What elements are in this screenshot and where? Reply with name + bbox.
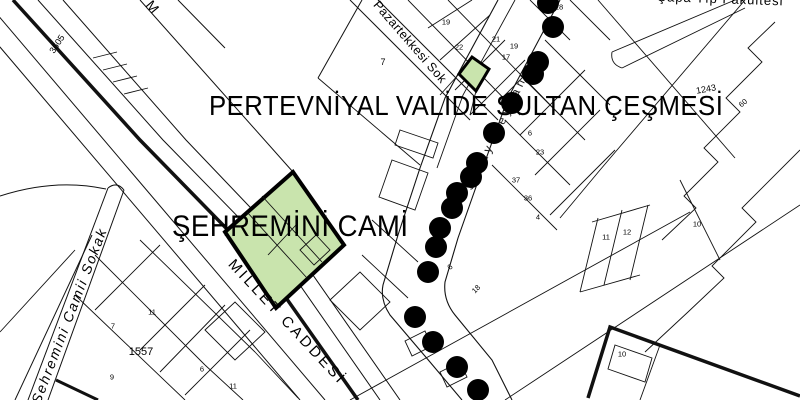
tree-dot: [446, 356, 468, 378]
tree-dot: [417, 261, 439, 283]
tree-row: [0, 0, 800, 400]
tree-dot: [542, 16, 564, 38]
tree-dot: [404, 306, 426, 328]
tree-dot: [537, 0, 559, 14]
cadastral-map: PERTEVNİYAL VALİDE SULTAN ÇEŞMESİ ŞEHREM…: [0, 0, 800, 400]
tree-dot: [467, 379, 489, 400]
tree-dot: [522, 63, 544, 85]
tree-dot: [422, 331, 444, 353]
tree-dot: [425, 236, 447, 258]
tree-dot: [429, 217, 451, 239]
tree-dot: [441, 197, 463, 219]
tree-dot: [501, 92, 523, 114]
tree-dot: [483, 122, 505, 144]
